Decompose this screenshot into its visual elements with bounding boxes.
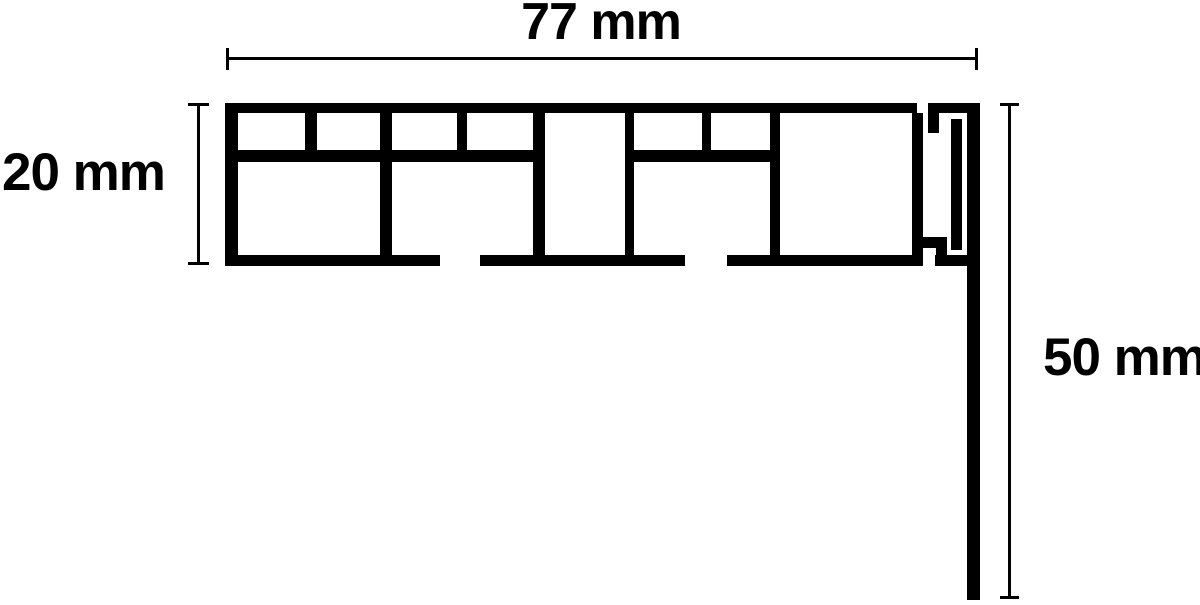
height-dimension-line-bar [197, 104, 200, 265]
profile-divider-full-1 [380, 113, 392, 266]
profile-drop-panel [967, 103, 980, 600]
height-dimension-tick-top [188, 103, 209, 106]
technical-drawing-canvas: 77 mm 20 mm 50 mm [0, 0, 1200, 605]
drop-dimension-line-bar [1008, 104, 1011, 599]
width-dimension-label: 77 mm [451, 0, 751, 48]
drop-dimension-tick-top [1000, 103, 1019, 106]
drop-dimension-label: 50 mm [1043, 331, 1200, 384]
profile-bottom-wall-seg1 [225, 255, 440, 266]
profile-top-wall [225, 103, 917, 113]
profile-snap-foot [936, 237, 947, 266]
profile-bottom-wall-seg3 [727, 255, 923, 266]
profile-bottom-wall-seg2 [480, 255, 685, 266]
profile-divider-minor-1 [305, 113, 317, 162]
profile-divider-minor-2 [457, 113, 467, 162]
height-dimension-label: 20 mm [2, 146, 162, 199]
profile-snap-hook-top [928, 113, 939, 133]
profile-divider-full-2 [533, 113, 545, 266]
profile-divider-minor-3 [702, 113, 711, 162]
profile-left-wall [225, 103, 238, 266]
width-dimension-tick-left [226, 48, 229, 70]
width-dimension-line-bar [227, 57, 977, 60]
height-dimension-tick-bottom [188, 262, 209, 265]
profile-divider-full-4 [770, 113, 780, 266]
drop-dimension-tick-bottom [1000, 596, 1019, 599]
profile-snap-inner-bar [951, 119, 962, 250]
profile-divider-full-3 [625, 113, 634, 266]
width-dimension-tick-right [975, 48, 978, 70]
